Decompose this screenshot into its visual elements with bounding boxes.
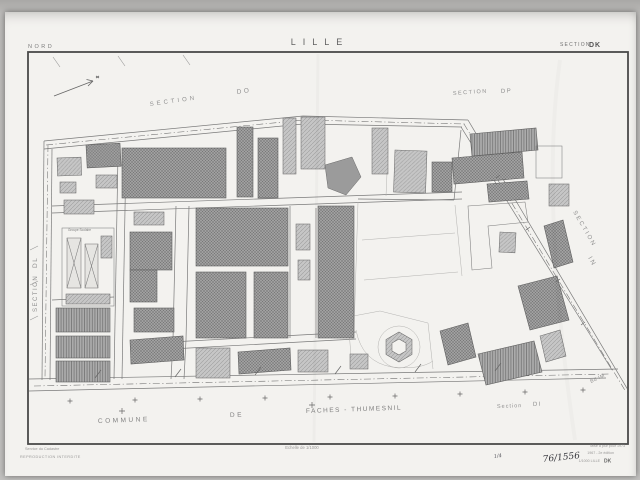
- sheet-margin: NORD LILLE SECTION DK: [28, 37, 601, 50]
- section-dp-code: DP: [501, 88, 513, 95]
- sheet-section-prefix: SECTION: [560, 42, 591, 48]
- edition-line-1: Mise à jour pour 1973: [590, 444, 625, 448]
- commune-word-1: COMMUNE: [98, 416, 150, 425]
- section-in-code: IN: [586, 256, 597, 269]
- edition-line-3: 1/1000 LILLE: [579, 459, 601, 463]
- edition-sheet-code: DK: [604, 459, 612, 465]
- gasometer-ring: [386, 332, 412, 362]
- reproduction-notice: REPRODUCTION INTERDITE: [20, 455, 81, 459]
- buildings-top-left: [57, 143, 121, 214]
- section-do-word: SECTION: [149, 95, 197, 108]
- edition-line-2: 1967 - 2e édition: [587, 451, 614, 455]
- section-do-code: DO: [236, 87, 252, 96]
- scale-label: Echelle de 1/1000: [285, 445, 319, 450]
- map-canvas: SECTION DO SECTION DP SECTION IN SECTION…: [0, 0, 640, 480]
- cadastre-service-line: Service du Cadastre: [25, 447, 59, 451]
- school-block: [62, 228, 114, 306]
- section-dp-word: SECTION: [453, 89, 488, 97]
- sheet-title: LILLE: [291, 37, 350, 47]
- sheet-section-code: DK: [589, 42, 601, 49]
- region-label: NORD: [28, 44, 54, 50]
- buildings-centre: [196, 206, 354, 338]
- handwritten-reference: 76/1556: [542, 451, 581, 465]
- section-di-code: DI: [533, 402, 542, 408]
- section-dl-word: SECTION: [33, 275, 39, 312]
- north-arrow-icon: [54, 76, 99, 96]
- commune-word-3: FACHES - THUMESNIL: [306, 405, 402, 415]
- buildings-top-centre: [122, 117, 452, 198]
- commune-word-2: DE: [230, 412, 244, 419]
- sheet-footer: Service du Cadastre REPRODUCTION INTERDI…: [20, 444, 625, 465]
- buildings-mid-left: [130, 212, 184, 364]
- handwritten-fraction: 1/4: [493, 453, 502, 460]
- row-houses-left: [56, 308, 110, 382]
- section-in-word: SECTION: [571, 210, 597, 248]
- section-di-word: Section: [497, 403, 523, 410]
- section-dl-code: DL: [32, 257, 39, 268]
- scanner-background: SECTION DO SECTION DP SECTION IN SECTION…: [0, 0, 640, 480]
- school-label: Groupe Scolaire: [68, 228, 91, 232]
